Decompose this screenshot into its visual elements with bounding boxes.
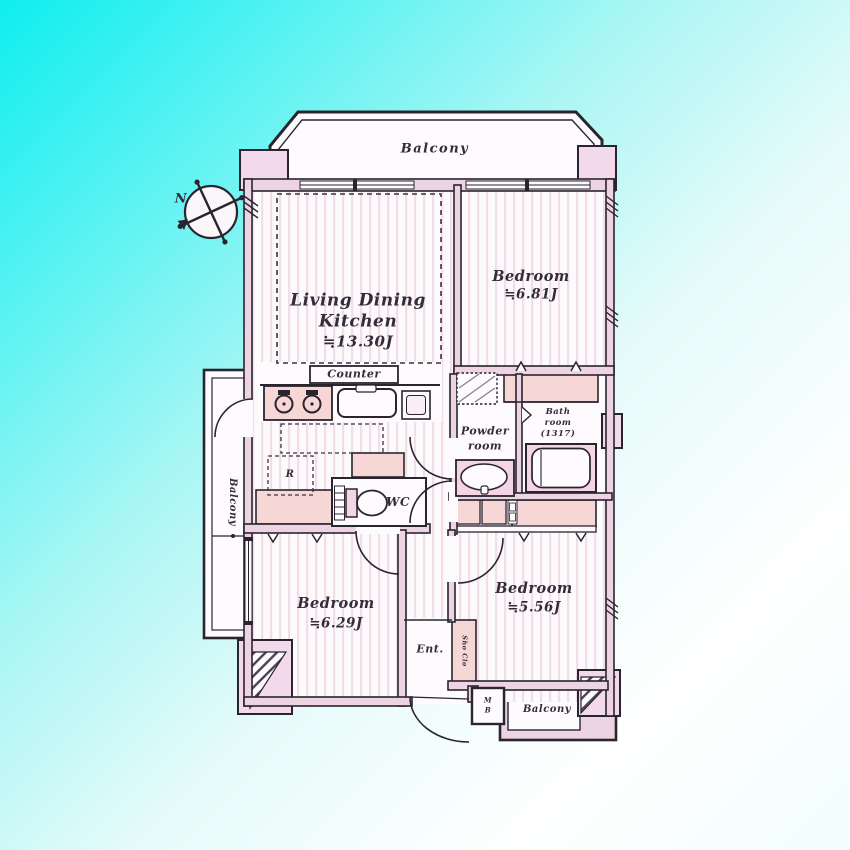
meter-box-label-line2: B <box>485 707 491 714</box>
counter-label: Counter <box>327 369 380 380</box>
powder-room-label-line1: Powder <box>461 426 509 437</box>
balcony-top-label: Balcony <box>401 143 469 156</box>
balcony-left-label: Balcony <box>227 478 237 526</box>
wc-label: WC <box>386 496 410 508</box>
floor-plan-page: Balcony Living Dining Kitchen ≒13.30J Be… <box>0 0 850 850</box>
ldk-area-label: ≒13.30J <box>323 335 393 350</box>
wc-room <box>332 478 426 526</box>
floor-plan-drawing <box>0 0 850 850</box>
ldk-label-line2: Kitchen <box>319 314 397 331</box>
stove-icon <box>264 386 332 420</box>
closet-front-line <box>455 526 596 532</box>
bedroom-top-right-area: ≒6.81J <box>504 288 558 302</box>
toilet-tank-icon <box>346 489 357 517</box>
refrigerator-label: R <box>286 470 295 480</box>
shoe-closet-label: Sho Clo <box>461 635 468 667</box>
ldk-label-line1: Living Dining <box>290 293 426 310</box>
bath-room-label-line3: (1317) <box>541 430 576 439</box>
toilet-bowl-icon <box>357 491 387 516</box>
bedroom-bottom-right-area: ≒5.56J <box>507 601 561 615</box>
bedroom-top-right-label: Bedroom <box>492 270 569 285</box>
bath-room-label-line1: Bath <box>546 408 571 417</box>
balcony-bottom-right-label: Balcony <box>523 705 571 715</box>
sink-icon <box>338 389 396 417</box>
powder-room-label-line2: room <box>468 441 502 452</box>
bedroom-bottom-right-label: Bedroom <box>495 582 572 597</box>
bath-room-label-line2: room <box>545 419 572 428</box>
meter-box-label-line1: M <box>484 697 492 704</box>
entrance-label: Ent. <box>416 644 443 655</box>
bedroom-bottom-left-area: ≒6.29J <box>309 617 363 631</box>
compass-north-label: N <box>175 193 187 206</box>
bedroom-bottom-left-label: Bedroom <box>297 597 374 612</box>
